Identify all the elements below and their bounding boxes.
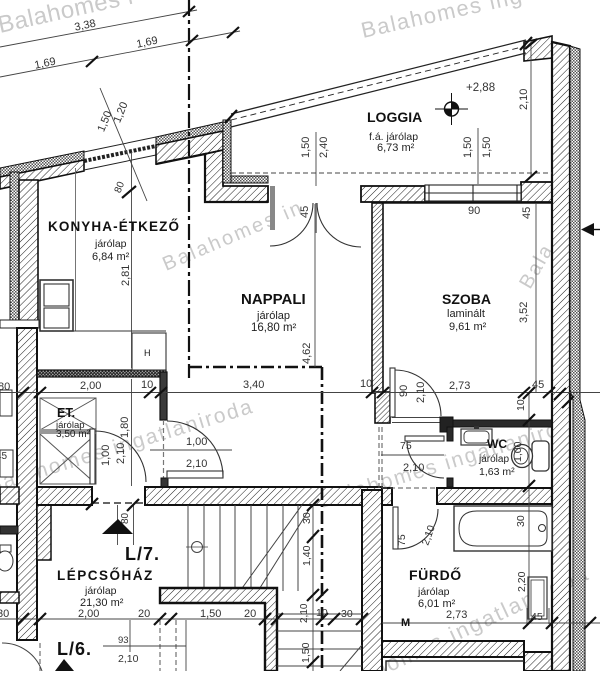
svg-text:2,00: 2,00 [78,608,99,620]
svg-text:L/7.: L/7. [125,544,160,564]
svg-text:FÜRDŐ: FÜRDŐ [409,566,462,583]
svg-text:1,00: 1,00 [100,445,112,466]
svg-text:6,84 m²: 6,84 m² [92,251,130,263]
svg-text:LOGGIA: LOGGIA [367,109,422,125]
svg-text:45: 45 [531,611,543,623]
svg-text:2,10: 2,10 [186,458,207,470]
svg-text:2,10: 2,10 [118,653,139,665]
svg-text:L/6.: L/6. [57,639,92,659]
svg-text:30: 30 [0,608,9,620]
svg-text:laminált: laminált [447,308,485,320]
svg-text:KONYHA-ÉTKEZŐ: KONYHA-ÉTKEZŐ [48,219,180,234]
svg-text:1,50: 1,50 [300,642,312,663]
svg-text:45: 45 [0,451,8,462]
svg-text:10: 10 [141,379,153,391]
svg-text:2,10: 2,10 [415,382,427,403]
svg-text:4,62: 4,62 [301,343,313,364]
svg-text:10: 10 [360,378,372,390]
svg-text:45: 45 [299,206,311,218]
svg-text:3,40: 3,40 [243,379,264,391]
svg-text:1,80: 1,80 [119,417,131,438]
svg-text:80: 80 [0,381,10,393]
svg-text:SZOBA: SZOBA [442,291,491,307]
svg-text:2,81: 2,81 [120,265,132,286]
svg-text:ET.: ET. [57,406,75,420]
svg-text:1,50: 1,50 [300,137,312,158]
svg-text:2,10: 2,10 [518,89,530,110]
svg-text:2,00: 2,00 [80,380,101,392]
svg-text:2,10: 2,10 [299,603,310,623]
svg-text:járólap: járólap [417,586,450,598]
svg-text:20: 20 [244,608,256,620]
svg-text:NAPPALI: NAPPALI [241,291,306,308]
svg-text:45: 45 [532,379,544,391]
svg-text:1,40: 1,40 [301,545,313,566]
svg-text:járólap: járólap [256,310,290,322]
svg-text:1,63 m²: 1,63 m² [479,466,515,478]
svg-text:30: 30 [341,608,353,620]
svg-text:járólap: járólap [94,238,127,250]
svg-text:járólap: járólap [84,585,117,597]
svg-text:1,00: 1,00 [512,441,524,462]
svg-text:1,00: 1,00 [186,436,207,448]
svg-text:75: 75 [400,440,412,452]
svg-text:80: 80 [120,512,131,524]
svg-text:75: 75 [396,534,408,546]
svg-text:LÉPCSŐHÁZ: LÉPCSŐHÁZ [57,568,154,583]
svg-text:3,50 m²: 3,50 m² [56,429,91,440]
svg-text:10: 10 [316,607,328,619]
svg-text:WC: WC [487,437,507,451]
svg-text:90: 90 [468,205,480,217]
svg-text:1,50: 1,50 [200,608,221,620]
svg-text:20: 20 [138,608,150,620]
svg-text:10: 10 [515,399,527,411]
svg-text:9,61 m²: 9,61 m² [449,321,487,333]
svg-text:90: 90 [398,385,410,397]
svg-text:30: 30 [515,515,527,527]
svg-text:járólap: járólap [478,454,509,465]
svg-text:3,52: 3,52 [518,302,530,323]
svg-text:2,20: 2,20 [516,571,528,592]
svg-text:2,10: 2,10 [403,462,424,474]
svg-text:6,01 m²: 6,01 m² [418,598,456,610]
svg-text:45: 45 [521,207,533,219]
svg-text:93: 93 [118,635,129,646]
svg-text:2,73: 2,73 [446,609,467,621]
svg-text:H: H [144,348,151,358]
svg-text:16,80 m²: 16,80 m² [251,322,297,334]
svg-text:2,73: 2,73 [449,380,470,392]
svg-text:6,73 m²: 6,73 m² [377,142,415,154]
svg-text:1,50: 1,50 [462,137,474,158]
svg-text:21,30 m²: 21,30 m² [80,597,124,609]
svg-text:2,40: 2,40 [318,137,330,158]
svg-text:2,10: 2,10 [115,443,127,464]
svg-text:M: M [401,617,410,629]
svg-text:1,50: 1,50 [481,137,493,158]
svg-text:30: 30 [301,512,313,524]
svg-text:+2,88: +2,88 [466,82,495,94]
